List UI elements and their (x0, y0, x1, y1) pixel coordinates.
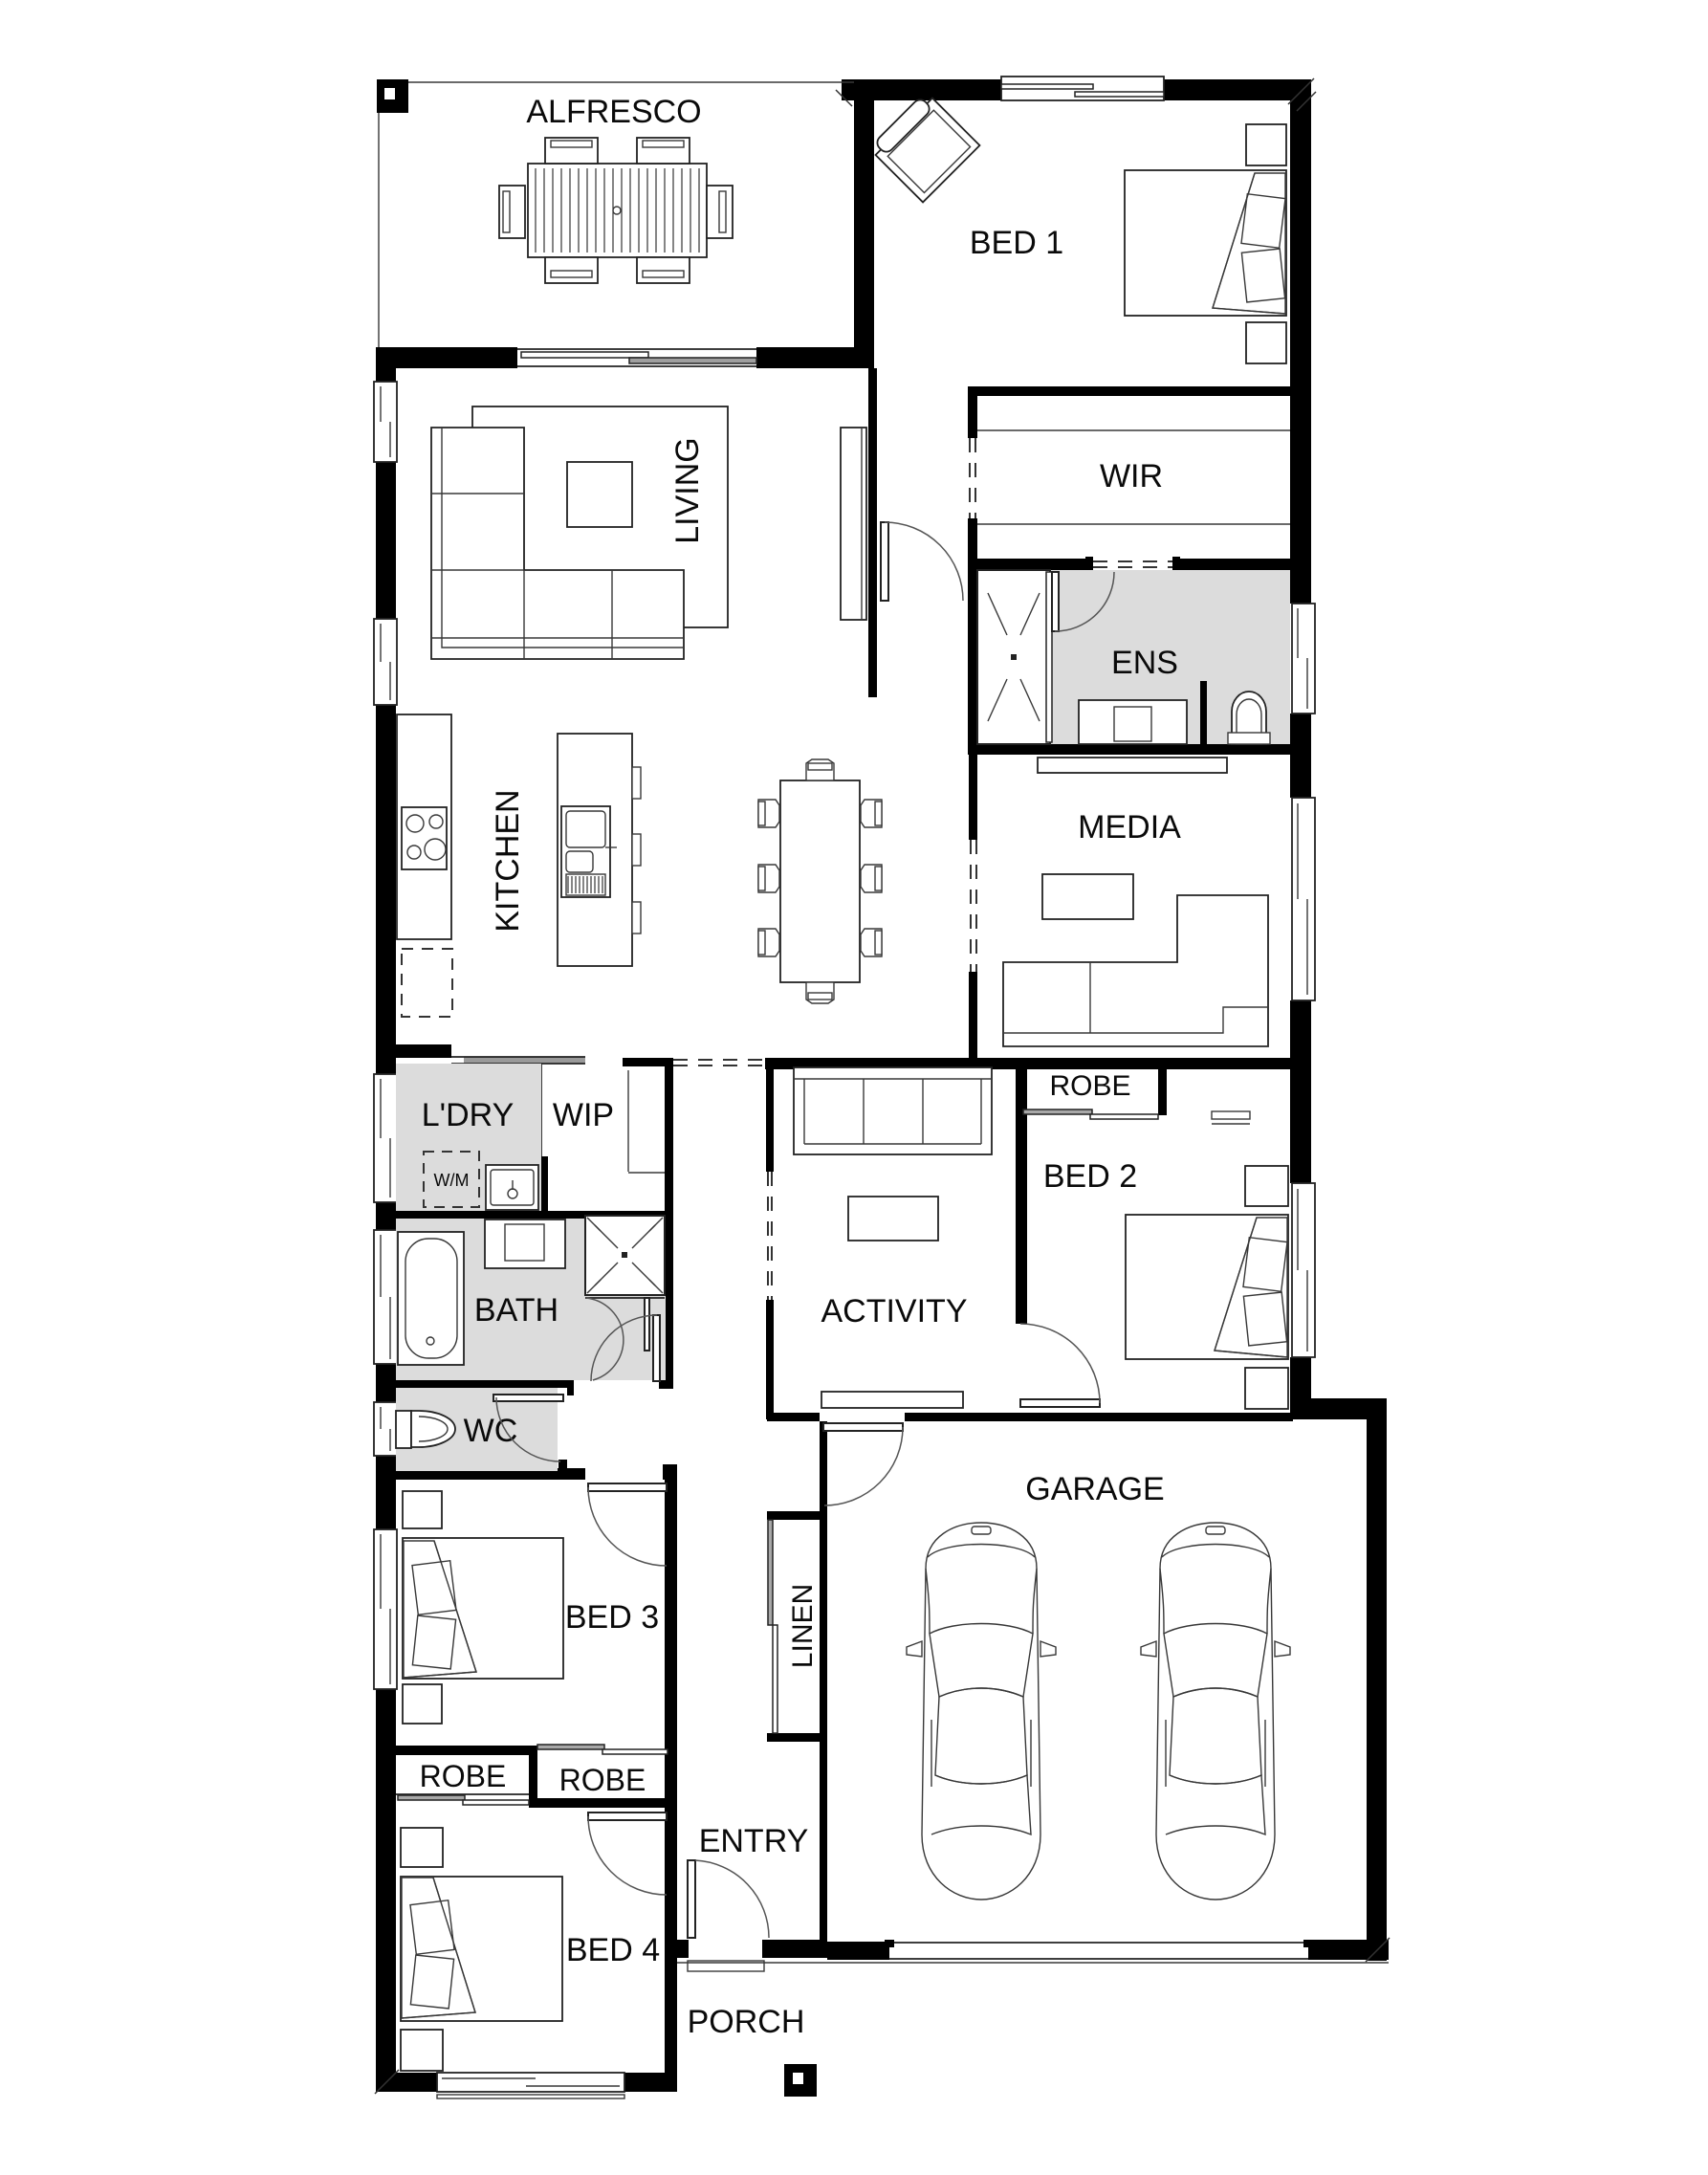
svg-text:ACTIVITY: ACTIVITY (821, 1293, 967, 1329)
svg-text:KITCHEN: KITCHEN (490, 789, 526, 932)
svg-text:WIR: WIR (1100, 458, 1163, 494)
svg-text:ENS: ENS (1111, 645, 1178, 681)
svg-text:LINEN: LINEN (787, 1584, 819, 1668)
svg-text:ROBE: ROBE (559, 1763, 646, 1797)
svg-text:ROBE: ROBE (420, 1759, 507, 1793)
svg-text:GARAGE: GARAGE (1025, 1471, 1164, 1507)
svg-text:ENTRY: ENTRY (699, 1823, 809, 1859)
svg-text:L'DRY: L'DRY (422, 1097, 515, 1133)
svg-text:BED 4: BED 4 (566, 1932, 660, 1968)
svg-text:BED 3: BED 3 (565, 1599, 659, 1636)
svg-text:W/M: W/M (434, 1171, 470, 1190)
svg-text:WC: WC (464, 1413, 518, 1449)
svg-text:ALFRESCO: ALFRESCO (526, 94, 701, 130)
svg-text:BED 1: BED 1 (970, 225, 1063, 261)
svg-text:BATH: BATH (474, 1292, 558, 1329)
svg-text:PORCH: PORCH (688, 2004, 805, 2040)
svg-text:MEDIA: MEDIA (1078, 809, 1181, 846)
svg-text:ROBE: ROBE (1049, 1070, 1130, 1102)
svg-text:BED 2: BED 2 (1043, 1158, 1137, 1195)
svg-text:LIVING: LIVING (669, 437, 706, 543)
svg-text:WIP: WIP (553, 1097, 614, 1133)
